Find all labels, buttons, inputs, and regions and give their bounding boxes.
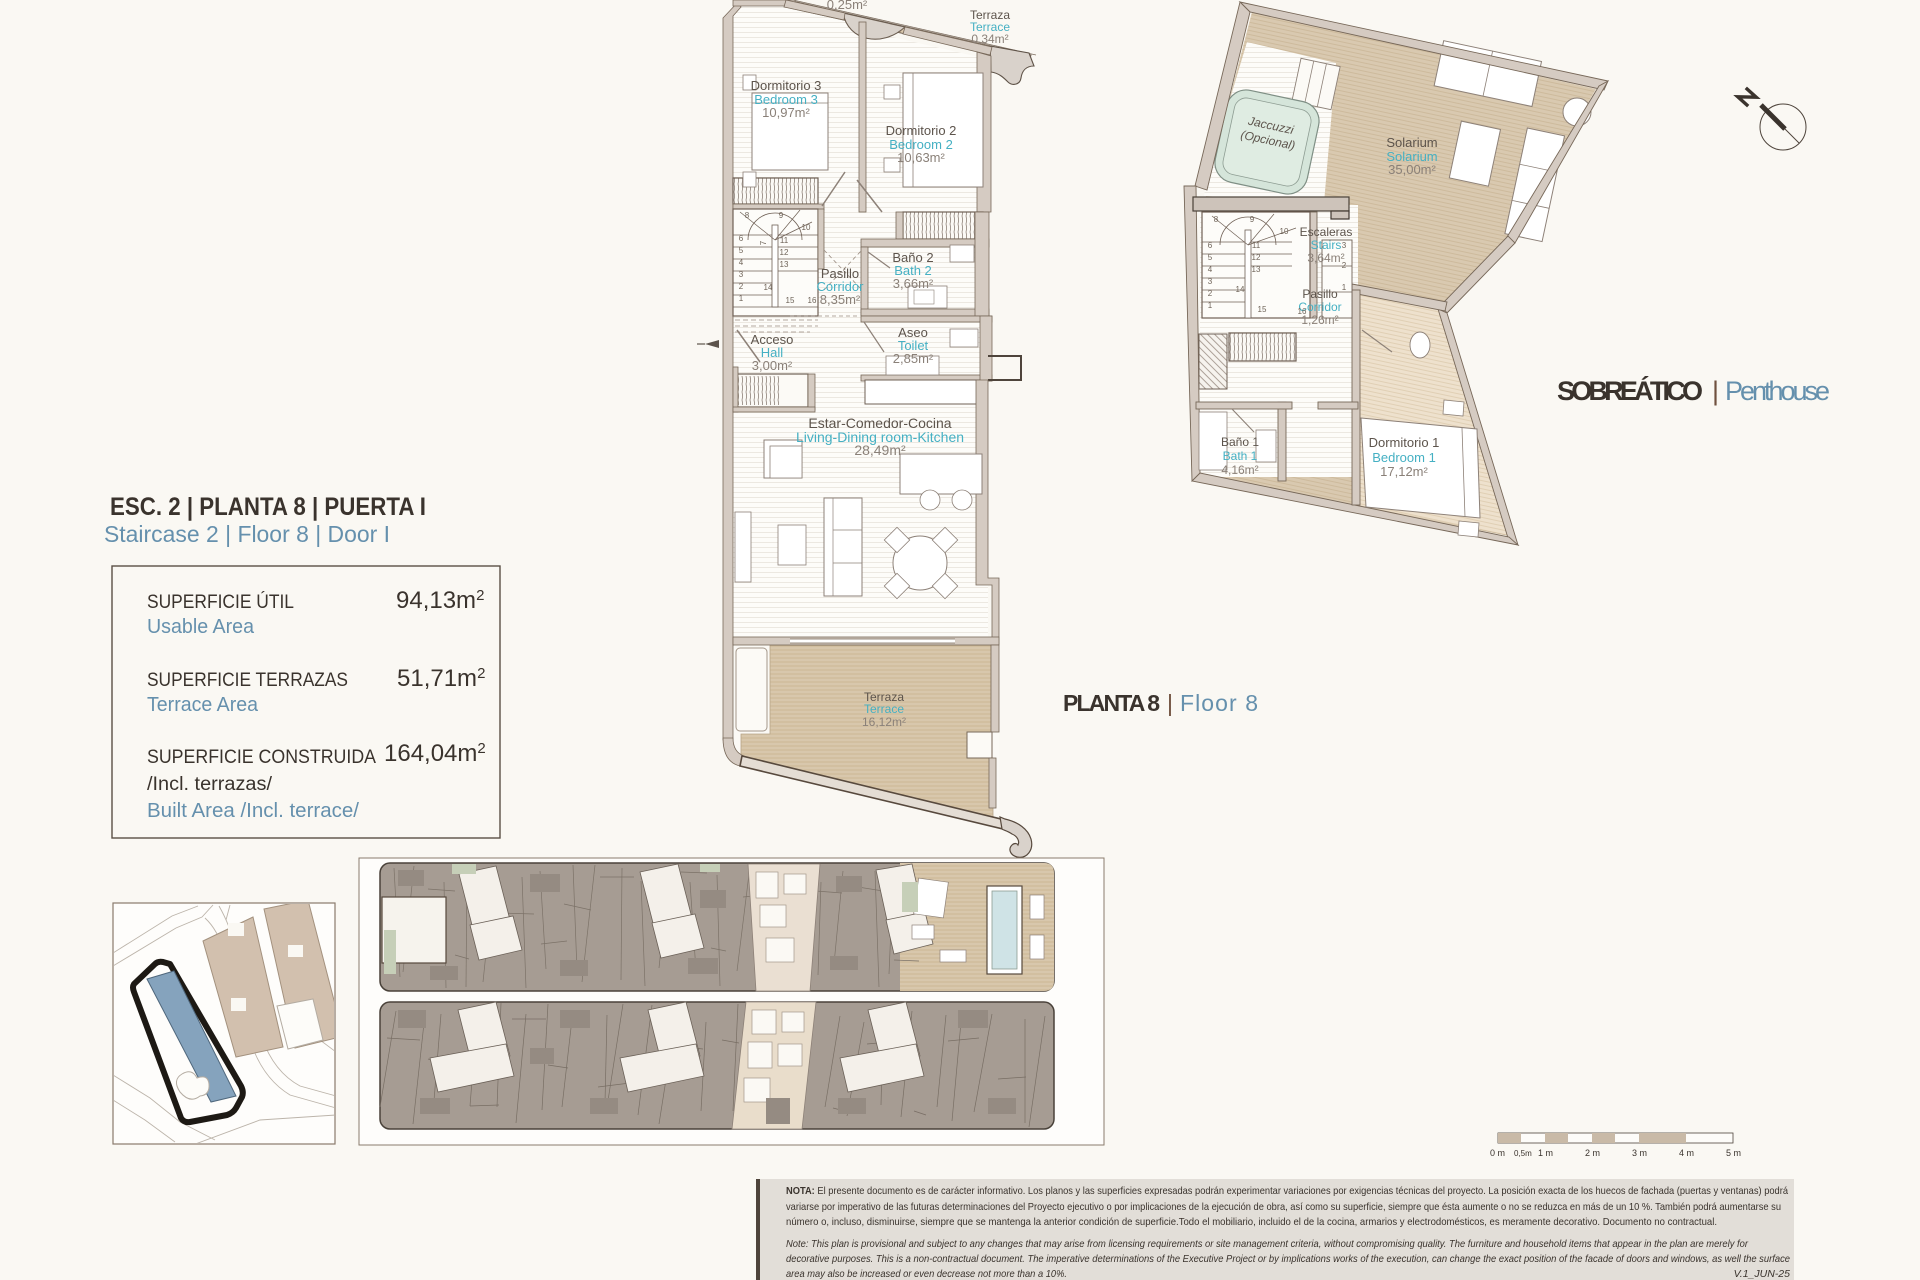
svg-text:Baño 1: Baño 1 <box>1221 435 1259 449</box>
svg-text:Stairs: Stairs <box>1311 238 1342 252</box>
svg-text:Note: This plan is provisional: Note: This plan is provisional and subje… <box>786 1238 1748 1250</box>
svg-text:0 m: 0 m <box>1490 1148 1505 1158</box>
svg-text:Built Area /Incl. terrace/: Built Area /Incl. terrace/ <box>147 800 359 822</box>
svg-text:Solarium: Solarium <box>1386 135 1437 150</box>
svg-text:6: 6 <box>1208 241 1213 250</box>
svg-text:3: 3 <box>739 270 744 279</box>
svg-text:ESC. 2 | PLANTA 8 | PUERTA I: ESC. 2 | PLANTA 8 | PUERTA I <box>110 493 426 521</box>
svg-text:|: | <box>1712 376 1719 406</box>
svg-text:SUPERFICIE TERRAZAS: SUPERFICIE TERRAZAS <box>147 670 348 691</box>
svg-text:16,12m²: 16,12m² <box>862 715 906 729</box>
svg-text:1,26m²: 1,26m² <box>1301 313 1338 327</box>
svg-text:9: 9 <box>1250 215 1255 224</box>
svg-text:8: 8 <box>1214 215 1219 224</box>
svg-text:|: | <box>1167 690 1173 716</box>
svg-text:0,5m: 0,5m <box>1514 1149 1532 1158</box>
svg-text:Dormitorio 1: Dormitorio 1 <box>1369 435 1440 450</box>
svg-text:8: 8 <box>745 211 750 220</box>
svg-text:Floor 8: Floor 8 <box>1180 690 1258 716</box>
svg-text:Escaleras: Escaleras <box>1300 225 1353 239</box>
svg-text:Terrace Area: Terrace Area <box>147 694 259 716</box>
svg-text:10: 10 <box>802 223 811 232</box>
svg-text:1: 1 <box>1208 301 1213 310</box>
svg-text:164,04m2: 164,04m2 <box>384 740 486 767</box>
svg-text:Dormitorio 2: Dormitorio 2 <box>886 123 957 138</box>
svg-text:13: 13 <box>1252 265 1261 274</box>
svg-text:1 m: 1 m <box>1538 1148 1553 1158</box>
svg-text:11: 11 <box>1252 241 1261 250</box>
svg-text:Dormitorio 3: Dormitorio 3 <box>751 78 822 93</box>
svg-text:Bath 1: Bath 1 <box>1223 449 1258 463</box>
svg-text:4: 4 <box>1208 265 1213 274</box>
svg-text:14: 14 <box>1236 285 1245 294</box>
svg-text:3,66m²: 3,66m² <box>893 276 934 291</box>
svg-text:12: 12 <box>780 248 789 257</box>
svg-text:2 m: 2 m <box>1585 1148 1600 1158</box>
svg-text:12: 12 <box>1252 253 1261 262</box>
svg-text:10,97m²: 10,97m² <box>762 105 810 120</box>
svg-text:7: 7 <box>759 240 768 245</box>
svg-text:17,12m²: 17,12m² <box>1380 464 1428 479</box>
svg-text:SUPERFICIE CONSTRUIDA: SUPERFICIE CONSTRUIDA <box>147 747 376 768</box>
svg-text:2,85m²: 2,85m² <box>893 351 934 366</box>
svg-text:Pasillo: Pasillo <box>1302 287 1338 301</box>
svg-text:3: 3 <box>1342 241 1347 250</box>
svg-text:15: 15 <box>1258 305 1267 314</box>
svg-text:SUPERFICIE ÚTIL: SUPERFICIE ÚTIL <box>147 591 294 613</box>
svg-text:2: 2 <box>739 282 744 291</box>
svg-text:4: 4 <box>739 258 744 267</box>
svg-text:3,00m²: 3,00m² <box>752 358 793 373</box>
svg-text:3,64m²: 3,64m² <box>1307 251 1344 265</box>
svg-text:3: 3 <box>1208 277 1213 286</box>
svg-text:1: 1 <box>739 294 744 303</box>
svg-text:10,63m²: 10,63m² <box>897 150 945 165</box>
svg-text:0,34m²: 0,34m² <box>971 32 1008 46</box>
svg-text:94,13m2: 94,13m2 <box>396 587 484 614</box>
svg-text:5: 5 <box>739 246 744 255</box>
svg-text:variarse por imperativo de las: variarse por imperativo de las futuras d… <box>786 1201 1781 1213</box>
svg-text:2: 2 <box>1208 289 1213 298</box>
svg-text:6: 6 <box>739 234 744 243</box>
svg-text:9: 9 <box>779 211 784 220</box>
svg-text:Usable Area: Usable Area <box>147 616 255 638</box>
svg-text:3 m: 3 m <box>1632 1148 1647 1158</box>
svg-text:10: 10 <box>1280 227 1289 236</box>
svg-text:Penthouse: Penthouse <box>1725 376 1830 406</box>
svg-text:PLANTA 8: PLANTA 8 <box>1063 690 1160 716</box>
svg-text:28,49m²: 28,49m² <box>854 442 906 458</box>
svg-text:5: 5 <box>1208 253 1213 262</box>
svg-text:2: 2 <box>1342 261 1347 270</box>
svg-text:/Incl. terrazas/: /Incl. terrazas/ <box>147 774 273 795</box>
svg-text:Staircase 2 | Floor 8 | Door I: Staircase 2 | Floor 8 | Door I <box>104 521 390 547</box>
svg-text:4,16m²: 4,16m² <box>1221 463 1258 477</box>
svg-text:Bedroom 1: Bedroom 1 <box>1372 450 1436 465</box>
svg-text:número o, incluso, disminuirse: número o, incluso, disminuirse, siempre … <box>786 1216 1717 1228</box>
svg-text:Terrace: Terrace <box>864 702 904 716</box>
svg-text:SOBREÁTICO: SOBREÁTICO <box>1557 375 1703 406</box>
svg-text:13: 13 <box>780 260 789 269</box>
svg-text:1: 1 <box>1342 283 1347 292</box>
svg-text:decorative purposes. This is a: decorative purposes. This is a non-contr… <box>786 1253 1790 1265</box>
svg-text:V.1_JUN-25: V.1_JUN-25 <box>1734 1268 1791 1280</box>
svg-text:area may also be increased or: area may also be increased or even decre… <box>786 1268 1067 1280</box>
svg-text:14: 14 <box>764 283 773 292</box>
svg-text:8,35m²: 8,35m² <box>820 292 861 307</box>
svg-text:51,71m2: 51,71m2 <box>397 665 485 692</box>
svg-text:5 m: 5 m <box>1726 1148 1741 1158</box>
svg-text:16: 16 <box>808 296 817 305</box>
svg-text:0,25m²: 0,25m² <box>827 0 868 12</box>
svg-text:15: 15 <box>786 296 795 305</box>
svg-text:35,00m²: 35,00m² <box>1388 162 1436 177</box>
svg-text:16: 16 <box>1298 307 1307 316</box>
svg-text:4 m: 4 m <box>1679 1148 1694 1158</box>
svg-text:NOTA: El presente documento e: NOTA: El presente documento es de caráct… <box>786 1185 1788 1197</box>
svg-text:11: 11 <box>780 236 789 245</box>
